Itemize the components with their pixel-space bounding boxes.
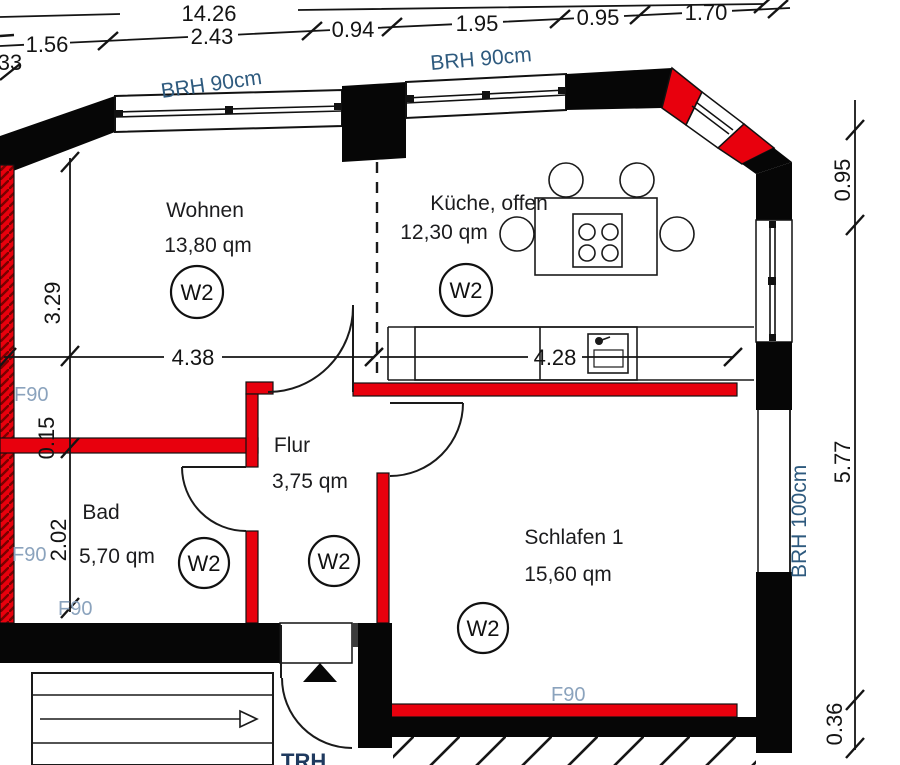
stairwell-label: TRH bbox=[281, 749, 326, 765]
dim-top-5: 0.95 bbox=[577, 5, 620, 30]
dim-left-1: 3.29 bbox=[40, 282, 65, 325]
flur-west-wall bbox=[246, 394, 258, 467]
dim-top-3: 0.94 bbox=[332, 17, 375, 42]
unit-badge-kueche: W2 bbox=[440, 264, 492, 316]
window-sill-label-3: BRH 100cm bbox=[788, 465, 811, 578]
window-right-upper bbox=[756, 220, 792, 342]
dim-top-4: 1.95 bbox=[456, 11, 499, 36]
dim-left-2: 0.15 bbox=[34, 417, 59, 460]
door-bad bbox=[182, 467, 246, 531]
room-area-flur: 3,75 qm bbox=[272, 470, 348, 493]
fire-rating-label-4: F90 bbox=[551, 684, 585, 706]
room-area-schlafen: 15,60 qm bbox=[524, 563, 612, 586]
dim-left-3: 2.02 bbox=[46, 519, 71, 562]
corner-diagonal-wall bbox=[662, 68, 792, 174]
unit-badge-schlafen: W2 bbox=[458, 603, 508, 653]
stairs bbox=[32, 673, 273, 765]
kitchen-bedroom-wall bbox=[353, 383, 737, 396]
dim-top-1: 1.56 bbox=[26, 32, 69, 57]
fire-rating-label-3: F90 bbox=[58, 598, 92, 620]
right-exterior-wall bbox=[756, 162, 792, 753]
wall-pillar bbox=[342, 82, 406, 162]
dim-right-2: 5.77 bbox=[830, 441, 855, 484]
room-name-bad: Bad bbox=[82, 501, 119, 524]
fire-rating-label-1: F90 bbox=[14, 384, 48, 406]
flur-schlafen-wall bbox=[377, 473, 389, 623]
floor-plan-page: 14.26 1.56 2.43 0.94 1.95 0.95 1.70 33 4… bbox=[0, 0, 900, 765]
dim-top-2: 2.43 bbox=[191, 24, 234, 49]
dim-top-6: 1.70 bbox=[685, 0, 728, 25]
unit-badge-wohnen: W2 bbox=[171, 266, 223, 318]
room-area-kueche: 12,30 qm bbox=[400, 221, 488, 244]
room-area-bad: 5,70 qm bbox=[79, 545, 155, 568]
top-exterior-wall bbox=[0, 68, 792, 176]
svg-text:W2: W2 bbox=[181, 280, 214, 305]
dim-right-3: 0.36 bbox=[822, 703, 847, 746]
svg-text:W2: W2 bbox=[318, 549, 351, 574]
dim-edge-partial: 33 bbox=[0, 50, 22, 75]
dining-table bbox=[535, 198, 657, 275]
room-name-wohnen: Wohnen bbox=[166, 199, 244, 222]
dim-total-top: 14.26 bbox=[181, 1, 236, 26]
dim-right-1: 0.95 bbox=[830, 159, 855, 202]
entrance-opening bbox=[280, 623, 352, 663]
room-name-flur: Flur bbox=[274, 434, 310, 457]
room-name-schlafen: Schlafen 1 bbox=[524, 526, 623, 549]
floor-plan-drawing: 14.26 1.56 2.43 0.94 1.95 0.95 1.70 33 4… bbox=[0, 0, 900, 765]
unit-badges: W2 W2 W2 W2 W2 bbox=[171, 264, 508, 653]
unit-badge-bad: W2 bbox=[179, 538, 229, 588]
door-wohnen bbox=[268, 305, 353, 392]
window-right-lower bbox=[756, 410, 792, 572]
svg-text:W2: W2 bbox=[450, 278, 483, 303]
dim-inner-2: 4.28 bbox=[534, 345, 577, 370]
unit-badge-flur: W2 bbox=[309, 536, 359, 586]
svg-text:W2: W2 bbox=[467, 616, 500, 641]
room-name-kueche: Küche, offen bbox=[430, 192, 548, 215]
fire-rating-label-2: F90 bbox=[12, 544, 46, 566]
svg-text:W2: W2 bbox=[188, 551, 221, 576]
room-area-wohnen: 13,80 qm bbox=[164, 234, 252, 257]
exterior-hatch bbox=[393, 737, 756, 765]
window-sill-label-2: BRH 90cm bbox=[429, 43, 532, 75]
window-top-right bbox=[406, 74, 566, 118]
kitchen-sink bbox=[588, 334, 628, 373]
entrance-arrow-icon bbox=[303, 663, 337, 682]
window-top-left bbox=[115, 90, 342, 132]
door-schlafen bbox=[390, 403, 463, 476]
dim-inner-1: 4.38 bbox=[172, 345, 215, 370]
